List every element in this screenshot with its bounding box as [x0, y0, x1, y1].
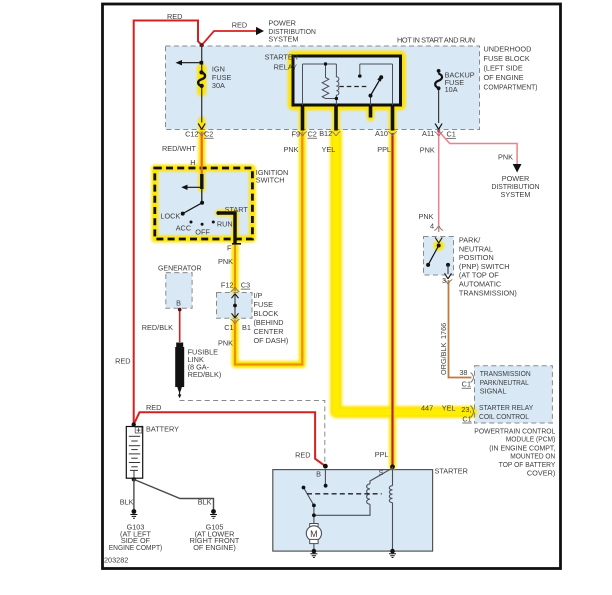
svg-text:YEL: YEL — [322, 145, 336, 154]
svg-text:H: H — [190, 158, 195, 167]
svg-text:BLK: BLK — [120, 497, 134, 506]
svg-text:PNK: PNK — [498, 153, 513, 162]
svg-text:ENGINE COMPT): ENGINE COMPT) — [109, 543, 163, 552]
svg-text:SWITCH: SWITCH — [256, 175, 285, 184]
svg-text:STARTER: STARTER — [265, 53, 298, 62]
svg-text:PPL: PPL — [375, 450, 389, 459]
svg-text:203282: 203282 — [104, 556, 128, 565]
svg-text:OF DASH): OF DASH) — [254, 336, 289, 345]
svg-text:GENERATOR: GENERATOR — [158, 264, 202, 273]
svg-text:4: 4 — [430, 222, 434, 231]
svg-text:COIL CONTROL: COIL CONTROL — [479, 412, 529, 421]
svg-text:C2: C2 — [308, 130, 317, 139]
svg-text:POSITION: POSITION — [459, 253, 494, 262]
svg-text:SIGNAL: SIGNAL — [480, 387, 507, 396]
svg-text:3: 3 — [442, 276, 446, 285]
svg-text:23,: 23, — [461, 405, 471, 414]
svg-text:CENTER: CENTER — [254, 327, 284, 336]
svg-text:C1: C1 — [447, 130, 456, 139]
svg-text:SYSTEM: SYSTEM — [268, 35, 298, 44]
svg-text:B: B — [316, 470, 321, 479]
svg-text:C1: C1 — [462, 380, 471, 389]
svg-text:SYSTEM: SYSTEM — [500, 190, 530, 199]
svg-text:BLOCK: BLOCK — [254, 309, 279, 318]
svg-text:FUSE: FUSE — [254, 300, 274, 309]
svg-text:447: 447 — [421, 403, 433, 412]
svg-text:BLK: BLK — [198, 497, 212, 506]
svg-text:COVER): COVER) — [527, 469, 555, 478]
svg-text:PPL: PPL — [377, 145, 391, 154]
svg-text:TRANSMISSION: TRANSMISSION — [480, 369, 531, 378]
svg-text:TRANSMISSION): TRANSMISSION) — [459, 288, 517, 297]
svg-text:NEUTRAL: NEUTRAL — [459, 244, 493, 253]
svg-text:RED/BLK: RED/BLK — [142, 323, 173, 332]
svg-text:38: 38 — [459, 368, 467, 377]
svg-text:RED: RED — [295, 450, 310, 459]
svg-text:STARTER RELAY: STARTER RELAY — [479, 403, 533, 412]
svg-text:RED: RED — [115, 357, 130, 366]
svg-text:F12: F12 — [221, 280, 234, 289]
svg-text:M: M — [310, 529, 318, 539]
svg-text:RED: RED — [232, 20, 247, 29]
svg-text:PNK: PNK — [420, 146, 435, 155]
svg-text:OF ENGINE: OF ENGINE — [484, 73, 524, 82]
svg-text:COMPARTMENT): COMPARTMENT) — [484, 83, 538, 92]
svg-text:10A: 10A — [445, 85, 458, 94]
svg-text:RUN: RUN — [217, 220, 233, 229]
svg-text:F: F — [227, 244, 232, 253]
svg-text:BATTERY: BATTERY — [146, 425, 179, 434]
svg-text:I/P: I/P — [254, 291, 263, 300]
svg-text:C1: C1 — [224, 323, 233, 332]
svg-text:A10: A10 — [375, 129, 388, 138]
svg-text:PARK/: PARK/ — [459, 235, 481, 244]
svg-text:RED: RED — [167, 12, 182, 21]
svg-text:OF ENGINE): OF ENGINE) — [193, 543, 236, 552]
svg-text:ACC: ACC — [176, 223, 191, 232]
svg-text:HOT IN START AND RUN: HOT IN START AND RUN — [397, 35, 475, 44]
svg-text:RED: RED — [146, 403, 161, 412]
svg-text:PNK: PNK — [283, 145, 298, 154]
svg-text:FUSE BLOCK: FUSE BLOCK — [484, 54, 530, 63]
svg-text:S: S — [379, 468, 384, 477]
svg-text:PNK: PNK — [218, 339, 233, 348]
svg-text:(PNP) SWITCH: (PNP) SWITCH — [459, 262, 510, 271]
svg-text:UNDERHOOD: UNDERHOOD — [484, 45, 532, 54]
svg-text:RED/WHT: RED/WHT — [162, 144, 197, 153]
svg-text:LOCK: LOCK — [160, 211, 180, 220]
svg-text:(BEHIND: (BEHIND — [254, 318, 284, 327]
svg-text:ORG/BLK: ORG/BLK — [439, 342, 448, 375]
svg-text:C12: C12 — [185, 130, 198, 139]
svg-text:(AT TOP OF: (AT TOP OF — [459, 271, 499, 280]
svg-text:OFF: OFF — [195, 227, 210, 236]
svg-text:AUTOMATIC: AUTOMATIC — [459, 280, 501, 289]
svg-text:PNK: PNK — [418, 212, 433, 221]
svg-text:START: START — [225, 205, 249, 214]
svg-text:B: B — [176, 299, 181, 308]
svg-text:PNK: PNK — [218, 257, 233, 266]
svg-text:C1: C1 — [462, 414, 471, 423]
svg-text:RED/BLK): RED/BLK) — [188, 370, 222, 379]
svg-text:1766: 1766 — [439, 323, 448, 339]
svg-text:(LEFT SIDE: (LEFT SIDE — [484, 64, 523, 73]
svg-text:F9: F9 — [291, 130, 300, 139]
svg-text:YEL: YEL — [442, 403, 456, 412]
svg-text:STARTER: STARTER — [435, 467, 468, 476]
svg-text:B1: B1 — [242, 323, 251, 332]
svg-text:C3: C3 — [241, 280, 250, 289]
svg-text:RELAY: RELAY — [274, 62, 298, 71]
svg-text:B12: B12 — [319, 129, 332, 138]
svg-text:A11: A11 — [422, 129, 434, 138]
svg-text:30A: 30A — [212, 81, 225, 90]
svg-text:C2: C2 — [204, 130, 213, 139]
